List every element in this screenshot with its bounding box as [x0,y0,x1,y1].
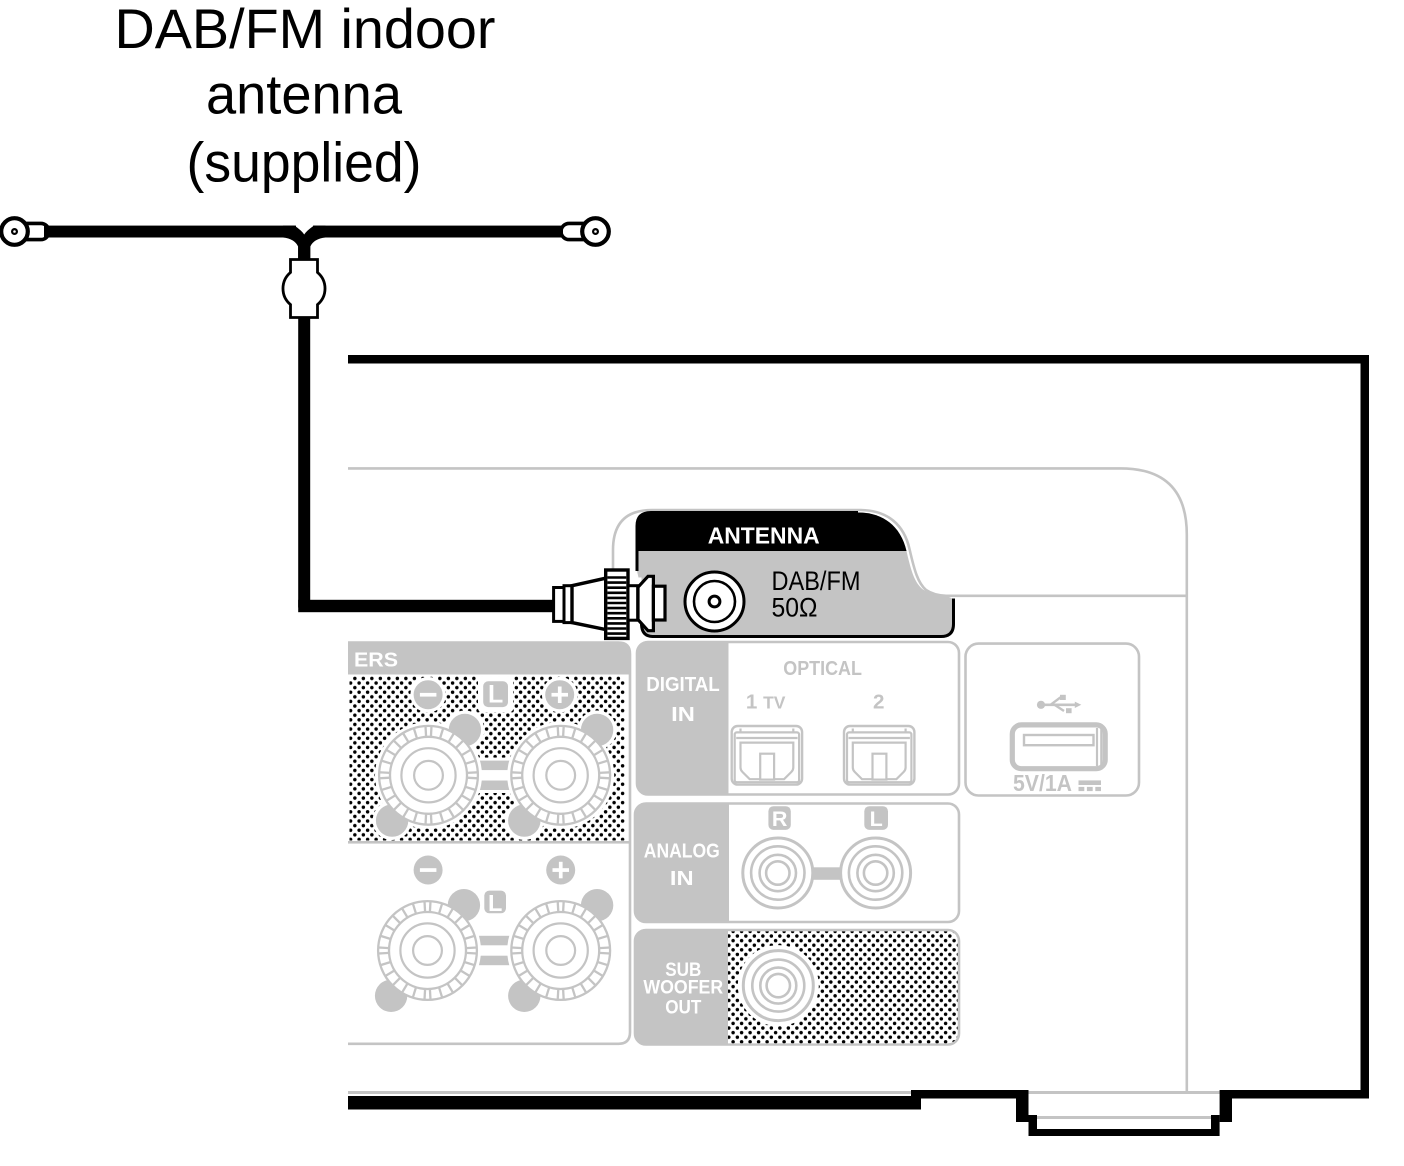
svg-text:OPTICAL: OPTICAL [783,657,862,680]
svg-text:L: L [870,807,883,831]
svg-text:50Ω: 50Ω [772,593,818,623]
svg-text:ANALOG: ANALOG [644,839,720,862]
svg-text:ERS: ERS [354,649,398,672]
svg-text:ANTENNA: ANTENNA [708,523,820,549]
svg-text:DAB/FM indoor: DAB/FM indoor [115,0,496,60]
svg-text:5V/1A: 5V/1A [1013,770,1072,796]
svg-text:L: L [488,681,503,709]
svg-text:WOOFER: WOOFER [643,978,723,999]
svg-text:(supplied): (supplied) [187,131,422,194]
svg-text:IN: IN [671,703,695,726]
svg-text:2: 2 [873,691,884,714]
svg-text:antenna: antenna [206,63,403,126]
svg-text:R: R [772,807,788,831]
svg-text:IN: IN [670,867,694,890]
svg-text:OUT: OUT [665,998,701,1019]
svg-text:L: L [488,890,502,916]
svg-text:1 TV: 1 TV [746,691,786,714]
svg-text:DAB/FM: DAB/FM [772,566,861,596]
svg-text:DIGITAL: DIGITAL [646,673,720,696]
